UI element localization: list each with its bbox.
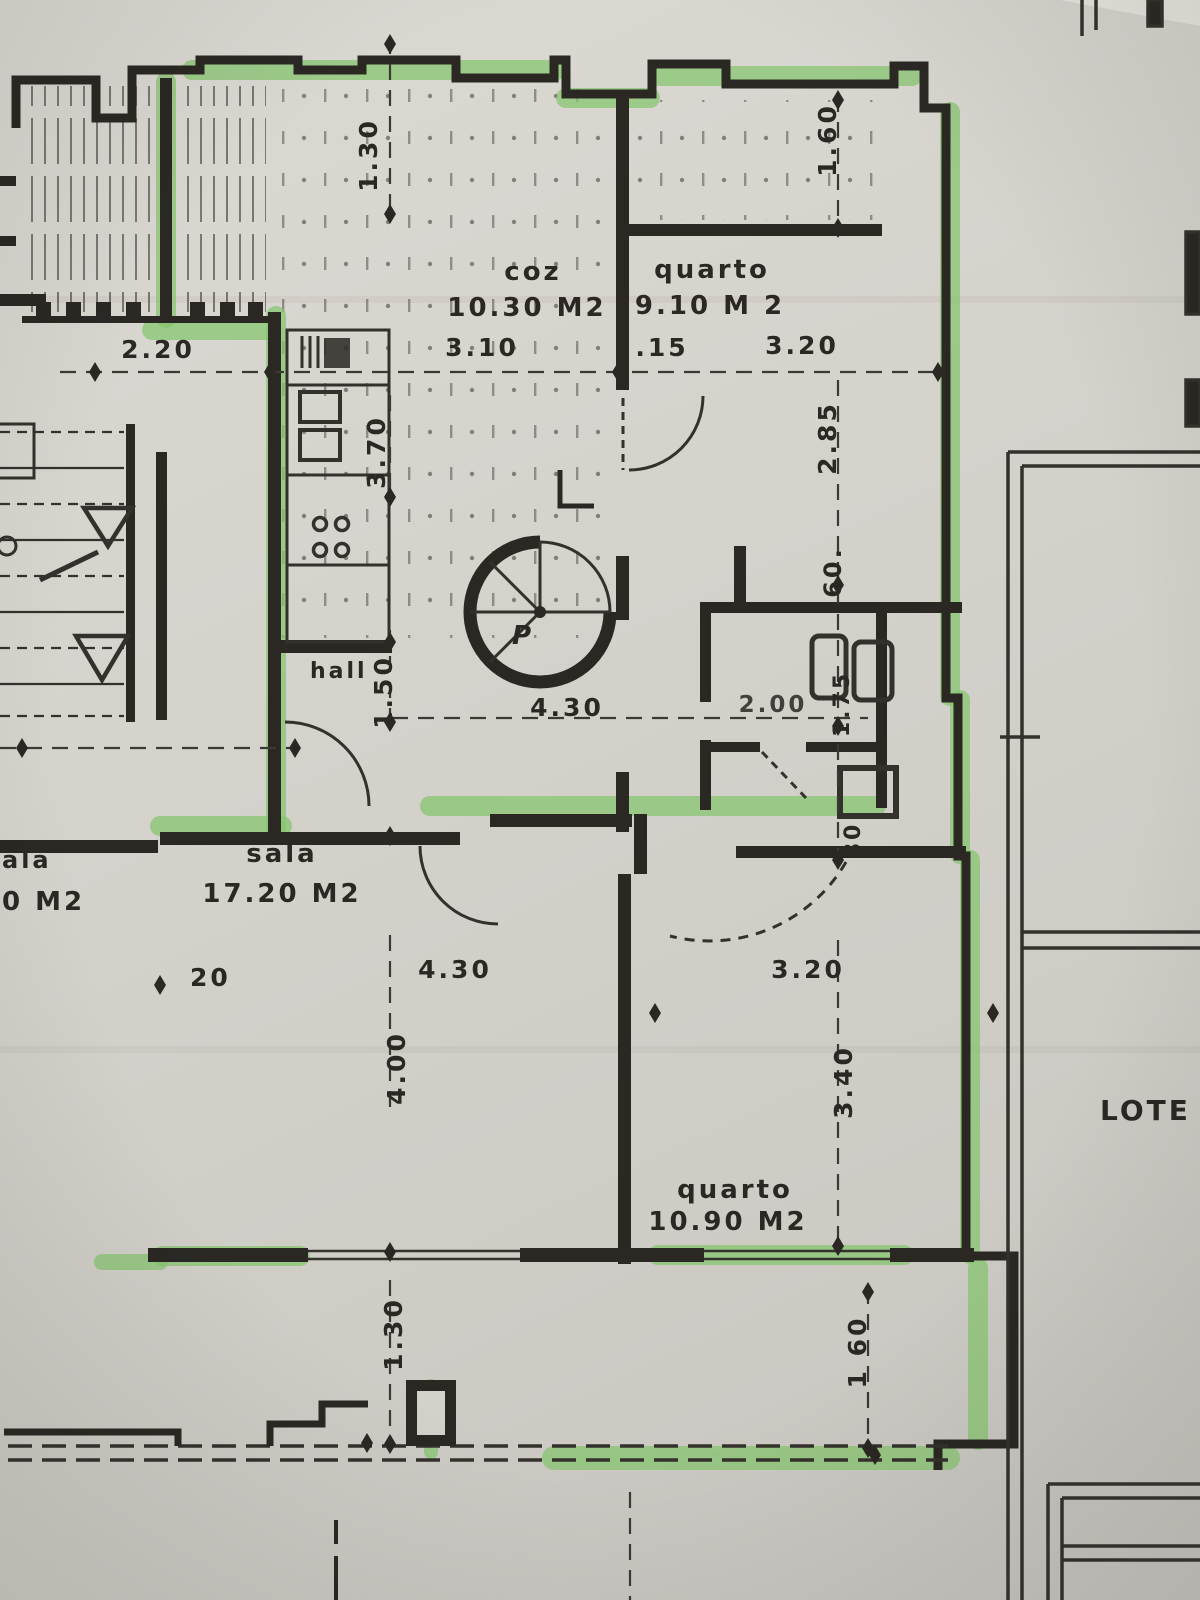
floor-plan-photo: coz 10.30 M2 quarto 9.10 M 2 sala 17.20 … — [0, 0, 1200, 1600]
floor-plan-svg: coz 10.30 M2 quarto 9.10 M 2 sala 17.20 … — [0, 0, 1200, 1600]
photo-vignette — [0, 0, 1200, 1600]
